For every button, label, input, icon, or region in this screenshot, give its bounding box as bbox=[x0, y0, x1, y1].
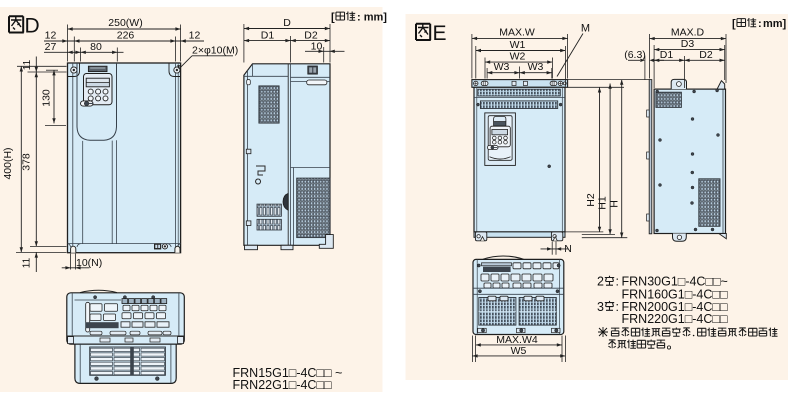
svg-text:FRN22G1□-4C□□: FRN22G1□-4C□□ bbox=[233, 378, 333, 392]
svg-text:H1: H1 bbox=[597, 196, 609, 210]
svg-text:D1: D1 bbox=[261, 30, 275, 42]
svg-text:11: 11 bbox=[22, 59, 33, 70]
svg-text:27: 27 bbox=[45, 41, 57, 53]
svg-text:W1: W1 bbox=[510, 39, 526, 51]
svg-text:[: [ bbox=[331, 12, 335, 24]
svg-text:W2: W2 bbox=[510, 50, 526, 62]
svg-text:D3: D3 bbox=[681, 38, 695, 50]
svg-text:W5: W5 bbox=[511, 345, 527, 357]
svg-text:E: E bbox=[433, 22, 447, 45]
svg-text:250(W): 250(W) bbox=[108, 17, 142, 29]
svg-text:[: [ bbox=[732, 18, 736, 30]
svg-text:mm]: mm] bbox=[763, 18, 787, 30]
svg-text:80: 80 bbox=[90, 41, 102, 53]
svg-text:MAX.W: MAX.W bbox=[499, 27, 535, 39]
svg-text:2: 2 bbox=[597, 275, 604, 289]
svg-text:400(H): 400(H) bbox=[2, 147, 14, 179]
svg-text:130: 130 bbox=[41, 89, 53, 107]
svg-text:11: 11 bbox=[22, 257, 33, 268]
svg-text:W3: W3 bbox=[494, 61, 510, 73]
svg-text::: : bbox=[616, 300, 619, 314]
svg-text:378: 378 bbox=[21, 153, 33, 171]
svg-text:(6.3): (6.3) bbox=[624, 49, 646, 61]
svg-text:D1: D1 bbox=[660, 49, 674, 61]
svg-text:12: 12 bbox=[45, 30, 57, 42]
svg-text:: mm]: : mm] bbox=[357, 12, 387, 24]
svg-text:M: M bbox=[581, 23, 590, 35]
svg-text:FRN220G1□-4C□□: FRN220G1□-4C□□ bbox=[622, 312, 728, 326]
svg-text:12: 12 bbox=[189, 30, 201, 42]
svg-text:D: D bbox=[25, 15, 40, 38]
svg-text:2×φ10(M): 2×φ10(M) bbox=[192, 45, 238, 57]
svg-text:H2: H2 bbox=[585, 193, 597, 207]
svg-text:D2: D2 bbox=[699, 49, 713, 61]
svg-text:D: D bbox=[283, 17, 291, 29]
svg-text:W3: W3 bbox=[528, 61, 544, 73]
svg-text:226: 226 bbox=[117, 30, 135, 42]
svg-text:3: 3 bbox=[597, 300, 604, 314]
svg-text::: : bbox=[758, 18, 762, 30]
svg-text::: : bbox=[616, 275, 619, 289]
